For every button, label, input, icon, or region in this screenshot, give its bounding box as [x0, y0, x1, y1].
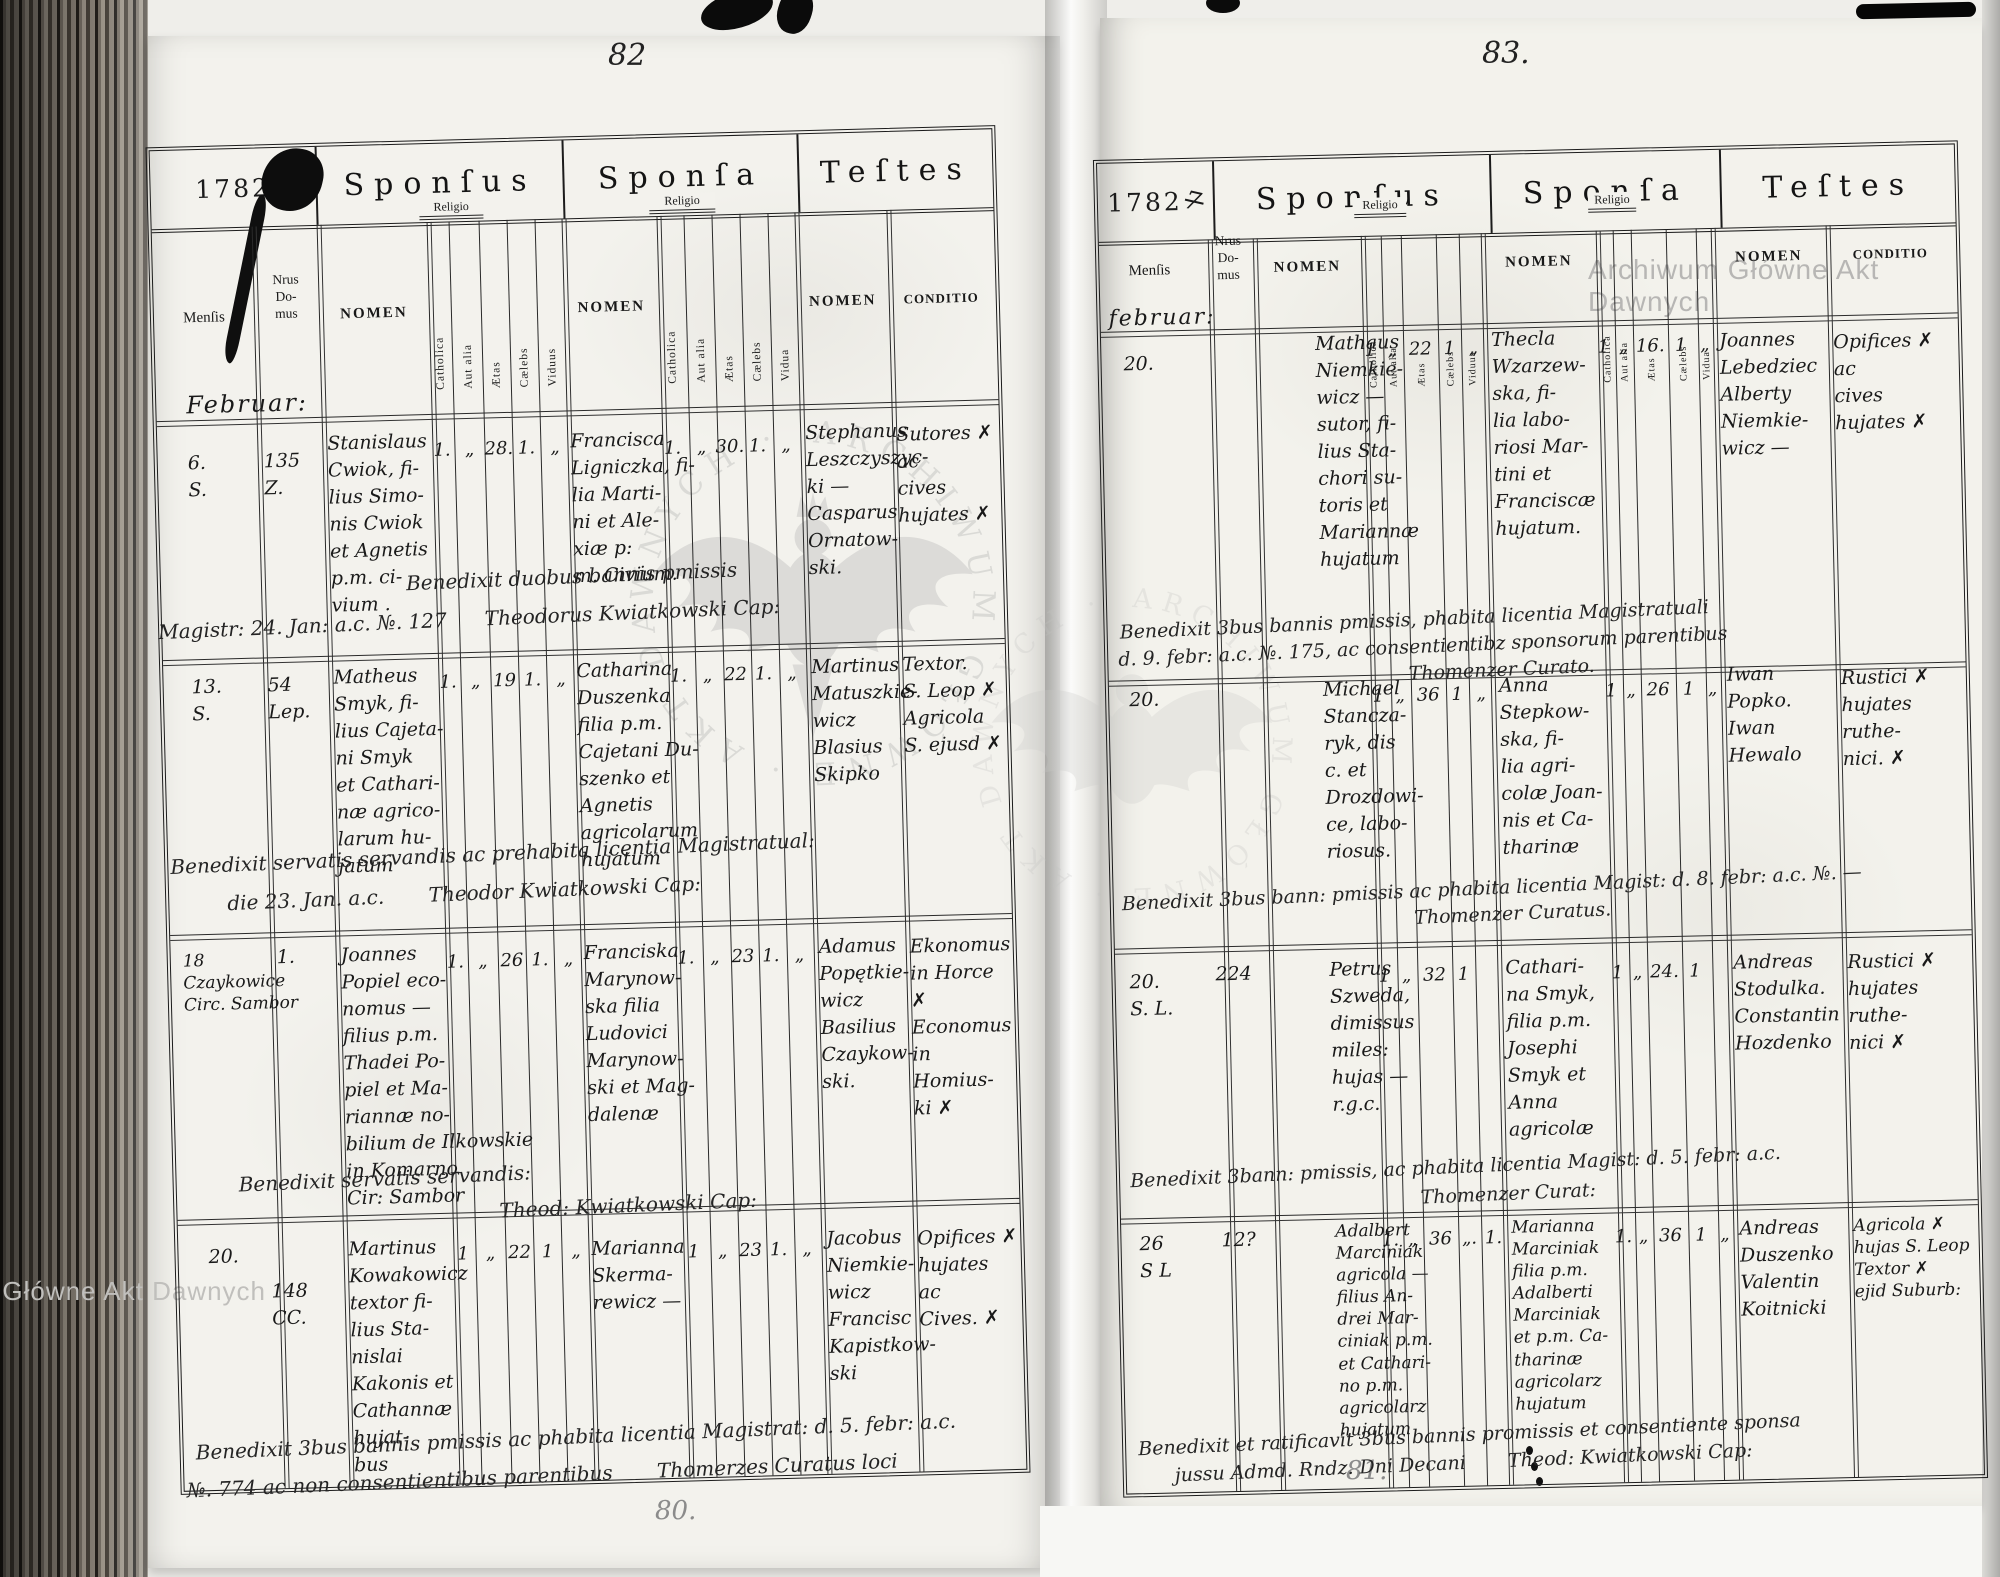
- caelebs-mark: 1: [1681, 960, 1708, 982]
- sponsa-religio-age-marks: 1. „ 23 1. „: [671, 944, 815, 969]
- column-header-house-number: Nrus Do- mus: [1199, 232, 1258, 284]
- column-rule: [1631, 230, 1660, 1482]
- column-header-conditio: CONDITIO: [889, 289, 994, 308]
- aetas-value: 26: [498, 950, 527, 972]
- aetas-value: 28.: [484, 438, 513, 460]
- catholica-mark: 1.: [443, 951, 469, 973]
- witnesses-condition: Rustici ✗ hujates ruthe- nici. ✗: [1841, 663, 1932, 773]
- column-header-religio: Religio: [419, 199, 484, 221]
- column-header-testes-nomen: NOMEN: [797, 292, 889, 311]
- sponsa-name: Marianna Skerma- rewicz —: [591, 1234, 686, 1317]
- entry-house-number: 12?: [1221, 1227, 1256, 1255]
- aut-alia-mark: „: [1621, 680, 1641, 701]
- entry-house-number: 135 Z.: [263, 447, 301, 502]
- caelebs-mark: 1: [1675, 678, 1702, 700]
- register-table-left: 1782 Sponſus Sponſa Teſtes Menſis: [146, 125, 1031, 1495]
- aut-alia-mark: „: [1389, 685, 1411, 706]
- aut-alia-mark: „: [1401, 1229, 1423, 1250]
- sponsus-religio-age-marks: 1 „ 22 1 „: [450, 1240, 591, 1265]
- sponsus-name: Adalbert Marciniak agricola — filius An-…: [1335, 1219, 1435, 1442]
- column-header-vidua: Vidua: [1696, 250, 1714, 380]
- vidua-mark: „: [777, 662, 807, 684]
- catholica-mark: 1: [1607, 962, 1627, 983]
- entry-house-number: 54 Lep.: [267, 671, 310, 726]
- aut-alia-mark: „: [701, 946, 730, 968]
- witnesses-condition: Rustici ✗ hujates ruthe- nici ✗: [1847, 947, 1938, 1057]
- sponsa-name: Anna Stepkow- ska, fi- lia agri- colæ Jo…: [1499, 671, 1604, 862]
- catholica-mark: 1: [1601, 680, 1621, 701]
- sponsus-religio-age-marks: 1 „ 36 1 „: [1367, 683, 1493, 707]
- caelebs-mark: 1: [1667, 334, 1694, 356]
- vidua-mark: [1708, 960, 1729, 981]
- catholica-mark: 1.: [1379, 1229, 1401, 1250]
- column-rule: [1613, 230, 1642, 1482]
- witnesses-names: Andreas Stodulka. Constantin Hozdenko: [1733, 947, 1841, 1057]
- aut-alia-mark: „: [460, 671, 491, 693]
- column-header-catholica: Catholica: [424, 247, 454, 390]
- sponsa-religio-age-marks: 1. „ 30. 1. „: [657, 434, 801, 459]
- vidua-mark: „: [792, 1238, 822, 1260]
- column-header-religio: Religio: [649, 192, 716, 214]
- column-header-sponsa-nomen: NOMEN: [1481, 253, 1596, 273]
- aetas-value: 16.: [1633, 335, 1667, 357]
- column-rule: [1253, 238, 1286, 1490]
- aetas-value: 23: [736, 1240, 765, 1262]
- register-scan: ARCHIWUM GŁÓWNE · AKT DAWNYCH · ARCHIWUM…: [0, 0, 2000, 1577]
- page-number-82: 82: [608, 38, 646, 73]
- caelebs-mark: 1.: [764, 1239, 793, 1261]
- column-header-caelebs: Cælebs: [740, 249, 771, 382]
- sponsus-name: Mathaus Niemkie- wicz — sutor, fi- lius …: [1315, 329, 1420, 574]
- vidua-mark: „: [1702, 678, 1723, 699]
- aetas-value: 24.: [1647, 961, 1681, 983]
- aut-alia-mark: „: [693, 664, 722, 686]
- entry-mensis: 20.: [1123, 351, 1154, 379]
- catholica-mark: 1.: [435, 671, 461, 693]
- column-header-sponsus-nomen: NOMEN: [1253, 258, 1361, 277]
- witnesses-condition: Opifices ✗ hujates ac Cives. ✗: [917, 1223, 1020, 1333]
- column-header-mensis: Menſis: [1099, 262, 1199, 281]
- register-table-right: 1782 7 Sponſus Sponſa Teſtes Menſis Nrus…: [1093, 140, 1988, 1497]
- catholica-mark: 1: [1373, 965, 1395, 986]
- aetas-value: 23: [729, 946, 758, 968]
- sponsus-religio-age-marks: 1. „ 28. 1. „: [429, 436, 570, 461]
- testes-header: Teſtes: [798, 129, 993, 212]
- caelebs-mark: 1: [1687, 1224, 1714, 1246]
- aetas-value: 22: [505, 1242, 534, 1264]
- pencil-folio-80: 80.: [655, 1496, 696, 1526]
- sponsa-religio-age-marks: 1 „ 23 1. „: [678, 1238, 822, 1263]
- column-header-caelebs: Cælebs: [1666, 250, 1699, 381]
- column-header-aut-alia: Aut alia: [450, 247, 483, 390]
- aut-alia-mark: „: [687, 437, 716, 459]
- sponsa-name: Cathari- na Smyk, filia p.m. Josephi Smy…: [1505, 953, 1598, 1144]
- sponsa-religio-age-marks: 1. „ 36 1 „: [1613, 1224, 1735, 1248]
- catholica-mark: 1: [1359, 339, 1381, 360]
- ink-smudge: [1206, 0, 1240, 13]
- sponsus-religio-age-marks: 1. „ 26 1. „: [443, 948, 584, 973]
- aetas-value: 19: [490, 670, 519, 692]
- viduus-mark: „: [540, 436, 570, 458]
- entry-mensis: 20.: [208, 1243, 239, 1271]
- caelebs-mark: 1: [533, 1241, 562, 1263]
- witnesses-condition: Sutores ✗ ac cives hujates ✗: [896, 419, 995, 529]
- aut-alia-mark: „: [1633, 1226, 1653, 1247]
- catholica-mark: 1.: [671, 947, 702, 969]
- book-spine-edge: [0, 0, 148, 1577]
- column-header-aetas: Ætas: [480, 266, 511, 389]
- aetas-value: 26: [1641, 679, 1675, 701]
- caelebs-mark: 1.: [526, 949, 555, 971]
- witnesses-condition: Agricola ✗ hujas S. Leop Textor ✗ ejid S…: [1853, 1212, 1971, 1303]
- year-cell: 1782 7: [1097, 161, 1216, 242]
- aetas-value: 36: [1653, 1225, 1687, 1247]
- column-header-sponsa-nomen: NOMEN: [564, 298, 659, 317]
- sponsa-religio-age-marks: 1 „ 24. 1: [1607, 960, 1729, 984]
- benediction-signature: Thomenzer Curatus.: [1414, 898, 1612, 929]
- entry-mensis: 20.: [1129, 687, 1160, 715]
- column-header-religio: Religio: [1354, 197, 1406, 218]
- column-header-aetas: Ætas: [1631, 261, 1669, 382]
- witnesses-names: Adamus Popętkie- wicz Basilius Czaykow- …: [818, 932, 914, 1096]
- catholica-mark: 1.: [657, 437, 688, 459]
- page-number-83: 83.: [1482, 36, 1530, 71]
- column-header-viduus: Viduus: [1459, 255, 1484, 385]
- column-header-caelebs: Cælebs: [1436, 256, 1462, 386]
- sponsa-religio-age-marks: 1. „ 22 1. „: [663, 662, 807, 687]
- vidua-mark: „: [785, 944, 815, 966]
- aut-alia-mark: „: [1381, 339, 1403, 360]
- sponsa-religio-age-marks: 1 „ 16. 1 „: [1593, 334, 1715, 358]
- column-header-sponsus-nomen: NOMEN: [319, 304, 429, 324]
- aut-alia-mark: „: [1613, 336, 1633, 357]
- caelebs-mark: 1.: [512, 437, 541, 459]
- column-header-mensis: Menſis: [154, 309, 254, 329]
- catholica-mark: 1.: [1613, 1226, 1633, 1247]
- viduus-mark: „: [1461, 337, 1485, 359]
- viduus-mark: „: [561, 1240, 591, 1262]
- caelebs-mark: 1: [1445, 684, 1469, 706]
- month-heading: februar:: [1108, 301, 1216, 335]
- aut-alia-mark: „: [1627, 962, 1647, 983]
- year-annotation: 7: [1182, 184, 1207, 216]
- catholica-mark: 1: [1593, 336, 1613, 357]
- entry-mensis: 26 S L: [1139, 1230, 1172, 1285]
- benediction-note: Magistr: 24. Jan: a.c. №. 127 Theodorus …: [158, 594, 781, 644]
- benediction-signature: Thomenzer Curat:: [1420, 1179, 1596, 1209]
- catholica-mark: 1: [1367, 685, 1389, 706]
- entry-mensis: 20. S. L.: [1129, 968, 1173, 1023]
- viduus-mark: „: [554, 948, 584, 970]
- aetas-value: 32: [1417, 964, 1451, 986]
- aetas-value: 30.: [715, 436, 744, 458]
- sponsus-religio-age-marks: 1. „ 36 „. 1.: [1379, 1227, 1505, 1251]
- witnesses-names: Iwan Popko. Iwan Hewalo: [1726, 660, 1801, 770]
- entry-mensis: 6. S.: [187, 450, 207, 504]
- column-header-aut-alia: Aut alia: [1613, 232, 1634, 382]
- column-rule: [1666, 229, 1695, 1481]
- caelebs-mark: 1.: [757, 945, 786, 967]
- vidua-mark: „: [1694, 334, 1715, 355]
- column-header-aut-alia: Aut alia: [684, 241, 716, 384]
- year-cell: 1782: [150, 147, 319, 229]
- month-heading: Februar:: [186, 385, 309, 422]
- column-header-caelebs: Cælebs: [507, 255, 538, 388]
- vidua-mark: „: [771, 434, 801, 456]
- aut-alia-mark: „: [475, 1242, 506, 1264]
- table-header-band: 1782 Sponſus Sponſa Teſtes: [150, 129, 994, 233]
- column-rule: [1436, 234, 1465, 1486]
- viduus-mark: 1.: [1481, 1227, 1505, 1249]
- caelebs-mark: 1.: [749, 663, 778, 685]
- catholica-mark: 1: [678, 1241, 709, 1263]
- caelebs-mark: 1.: [518, 669, 547, 691]
- ink-smudge: [1856, 2, 1976, 20]
- column-header-aetas: Ætas: [713, 260, 744, 383]
- witnesses-names: Andreas Duszenko Valentin Koitnicki: [1739, 1213, 1835, 1323]
- entry-house-number: 224: [1215, 961, 1252, 989]
- column-header-conditio: CONDITIO: [1826, 244, 1954, 263]
- entry-house-number: 148 CC.: [271, 1278, 309, 1333]
- sponsa-name: Thecla Wzarzew- ska, fi- lia labo- riosi…: [1491, 325, 1597, 543]
- year-label: 1782: [1107, 186, 1183, 217]
- aut-alia-mark: „: [708, 1240, 737, 1262]
- benediction-note: Theod: Kwiatkowski Cap:: [499, 1188, 757, 1223]
- column-header-testes-nomen: NOMEN: [1711, 247, 1826, 267]
- sponsa-religio-age-marks: 1 „ 26 1 „: [1601, 678, 1723, 702]
- witnesses-condition: Ekonomus in Horce ✗ Economus in Homius- …: [909, 931, 1017, 1122]
- vidua-mark: „: [1714, 1224, 1735, 1245]
- caelebs-mark: 1: [1451, 964, 1475, 986]
- aetas-value: 36: [1411, 684, 1445, 706]
- catholica-mark: 1.: [663, 665, 694, 687]
- viduus-mark: „: [546, 668, 576, 690]
- column-rule: [1459, 234, 1488, 1486]
- witnesses-names: Joannes Lebedziec Alberty Niemkie- wicz …: [1719, 326, 1819, 463]
- aut-alia-mark: „: [1395, 965, 1417, 986]
- sponsus-religio-age-marks: 1 „ 32 1: [1373, 963, 1499, 987]
- column-header-vidua: Vidua: [768, 248, 798, 381]
- aetas-value: 22: [1403, 338, 1437, 360]
- catholica-mark: 1.: [429, 439, 455, 461]
- entry-house-number: 1.: [276, 944, 295, 971]
- caelebs-mark: 1: [1437, 338, 1461, 360]
- ink-smudge: [772, 0, 819, 38]
- caelebs-mark: 1.: [743, 435, 772, 457]
- column-header-house-number: Nrus Do- mus: [253, 271, 319, 323]
- column-header-catholica: Catholica: [654, 241, 688, 384]
- testes-header: Teſtes: [1721, 144, 1956, 227]
- witnesses-condition: Textor. S. Leop ✗ Agricola S. ejusd ✗: [902, 649, 1002, 759]
- ink-smudge: [696, 0, 777, 38]
- caelebs-mark: „.: [1457, 1227, 1481, 1249]
- column-header-religio: Religio: [1588, 192, 1636, 213]
- aetas-value: 22: [721, 664, 750, 686]
- column-header-viduus: Viduus: [535, 254, 565, 387]
- sponsus-religio-age-marks: 1. „ 19 1. „: [435, 668, 576, 693]
- entry-mensis: 13. S.: [191, 674, 223, 729]
- scanner-background: [1040, 1506, 1982, 1577]
- witnesses-condition: Opifices ✗ ac cives hujates ✗: [1833, 327, 1936, 437]
- sponsus-religio-age-marks: 1 „ 22 1 „: [1359, 337, 1485, 361]
- catholica-mark: 1: [450, 1243, 476, 1265]
- sponsa-name: Marianna Marciniak filia p.m. Adalberti …: [1511, 1215, 1610, 1416]
- viduus-mark: „: [1469, 683, 1493, 705]
- benediction-note: die 23. Jan. a.c. Theodor Kwiatkowski Ca…: [227, 871, 701, 915]
- column-rule: [1208, 239, 1241, 1491]
- viduus-mark: [1475, 963, 1499, 985]
- aetas-value: 36: [1423, 1228, 1457, 1250]
- aut-alia-mark: „: [454, 439, 485, 461]
- aut-alia-mark: „: [468, 950, 499, 972]
